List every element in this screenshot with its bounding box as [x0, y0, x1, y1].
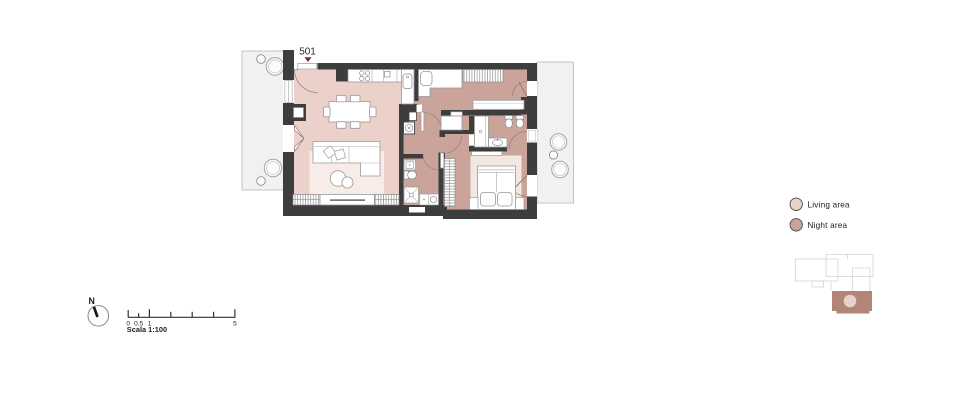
svg-text:Night area: Night area	[808, 221, 848, 230]
svg-text:N: N	[89, 296, 95, 306]
svg-text:501: 501	[299, 47, 316, 58]
svg-text:Living area: Living area	[808, 201, 851, 210]
svg-text:5: 5	[233, 321, 237, 328]
svg-text:Scala 1:100: Scala 1:100	[127, 325, 167, 334]
